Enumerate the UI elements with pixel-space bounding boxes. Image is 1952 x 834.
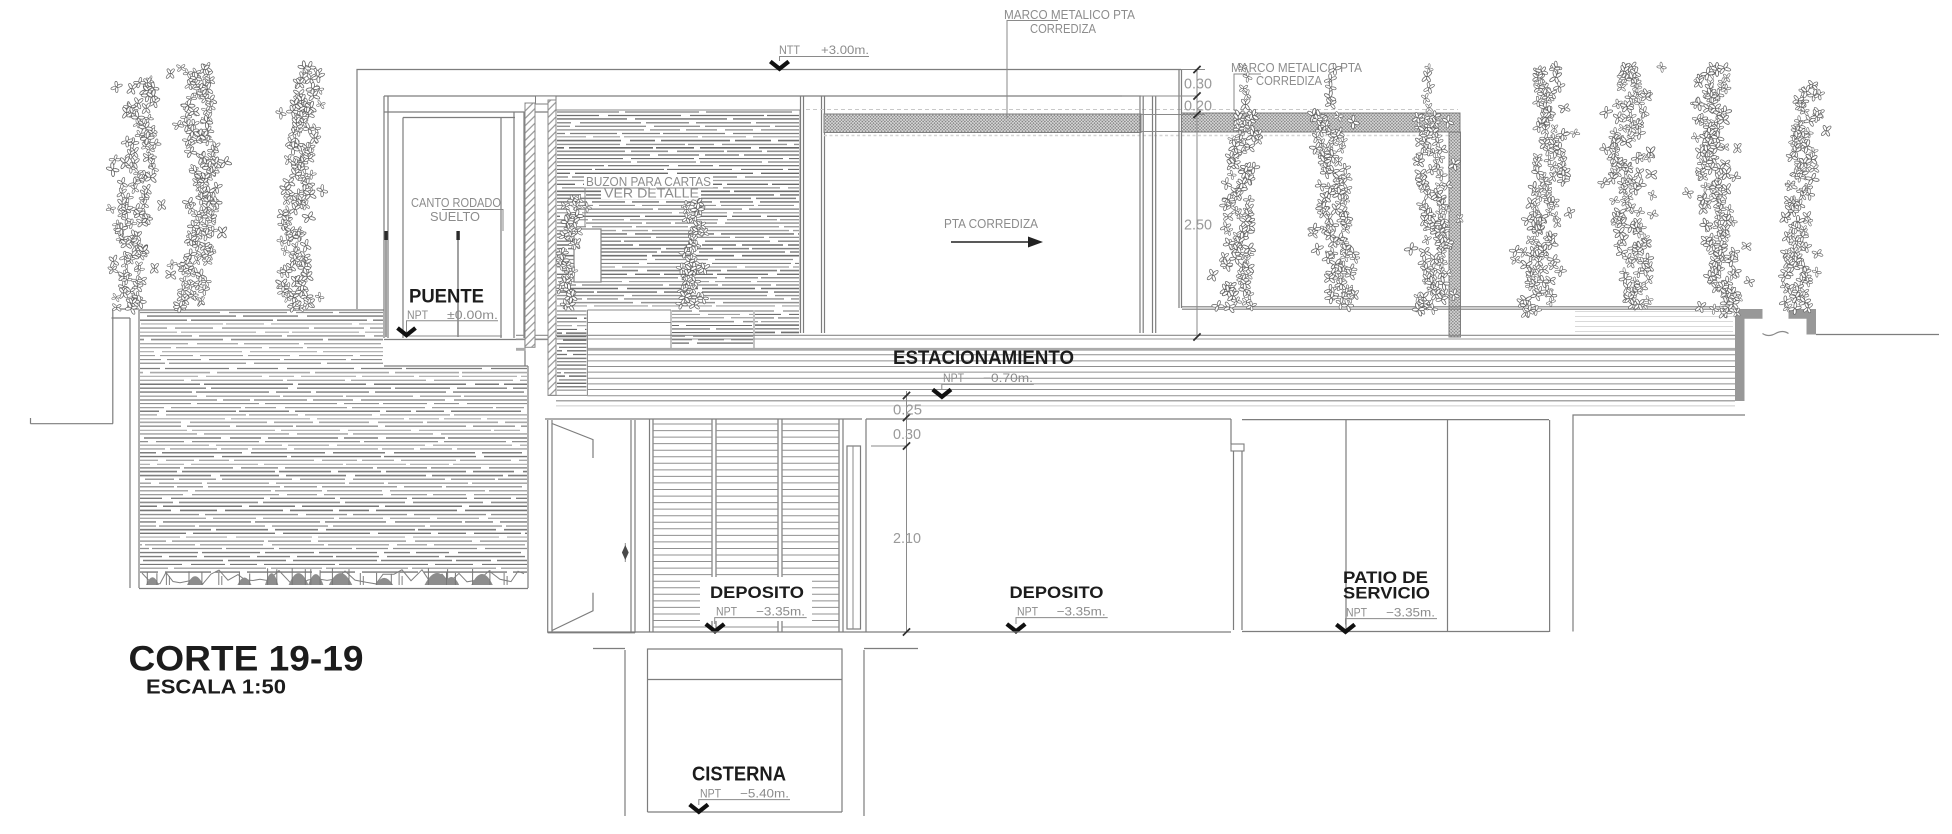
svg-text:SUELTO: SUELTO bbox=[430, 210, 480, 224]
svg-text:NTT: NTT bbox=[779, 43, 801, 57]
svg-text:+3.00m.: +3.00m. bbox=[821, 43, 869, 57]
svg-text:−3.35m.: −3.35m. bbox=[756, 605, 805, 619]
svg-text:CANTO RODADO: CANTO RODADO bbox=[411, 196, 501, 210]
svg-text:DEPOSITO: DEPOSITO bbox=[710, 583, 804, 602]
svg-text:CORREDIZA: CORREDIZA bbox=[1256, 74, 1323, 88]
svg-text:SERVICIO: SERVICIO bbox=[1343, 584, 1430, 603]
svg-text:CORREDIZA: CORREDIZA bbox=[1030, 22, 1097, 36]
svg-text:0.20: 0.20 bbox=[1184, 98, 1212, 115]
svg-text:CISTERNA: CISTERNA bbox=[692, 764, 786, 786]
svg-text:0.25: 0.25 bbox=[893, 402, 922, 419]
svg-text:−3.35m.: −3.35m. bbox=[1057, 605, 1106, 619]
svg-text:PTA CORREDIZA: PTA CORREDIZA bbox=[944, 217, 1039, 231]
svg-text:0.30: 0.30 bbox=[1184, 76, 1212, 93]
svg-text:NPT: NPT bbox=[716, 605, 738, 619]
svg-text:−0.70m.: −0.70m. bbox=[983, 371, 1033, 385]
svg-text:PUENTE: PUENTE bbox=[409, 287, 484, 308]
svg-text:−3.35m.: −3.35m. bbox=[1386, 606, 1435, 620]
svg-text:NPT: NPT bbox=[700, 787, 722, 801]
svg-text:ESCALA 1:50: ESCALA 1:50 bbox=[146, 676, 286, 699]
svg-text:±0.00m.: ±0.00m. bbox=[447, 308, 498, 322]
svg-text:0.30: 0.30 bbox=[893, 426, 921, 443]
svg-text:2.50: 2.50 bbox=[1184, 217, 1212, 234]
svg-text:−5.40m.: −5.40m. bbox=[740, 787, 789, 801]
svg-text:2.10: 2.10 bbox=[893, 530, 921, 547]
svg-text:NPT: NPT bbox=[407, 308, 429, 322]
svg-text:MARCO METALICO PTA: MARCO METALICO PTA bbox=[1004, 8, 1136, 22]
svg-text:CORTE 19-19: CORTE 19-19 bbox=[129, 639, 364, 679]
svg-text:NPT: NPT bbox=[1017, 605, 1039, 619]
svg-text:DEPOSITO: DEPOSITO bbox=[1010, 583, 1104, 602]
svg-text:ESTACIONAMIENTO: ESTACIONAMIENTO bbox=[893, 347, 1074, 369]
svg-text:VER DETALLE: VER DETALLE bbox=[604, 187, 699, 201]
svg-text:NPT: NPT bbox=[1346, 606, 1368, 620]
svg-text:MARCO METALICO PTA: MARCO METALICO PTA bbox=[1231, 61, 1363, 75]
svg-text:NPT: NPT bbox=[943, 371, 965, 385]
